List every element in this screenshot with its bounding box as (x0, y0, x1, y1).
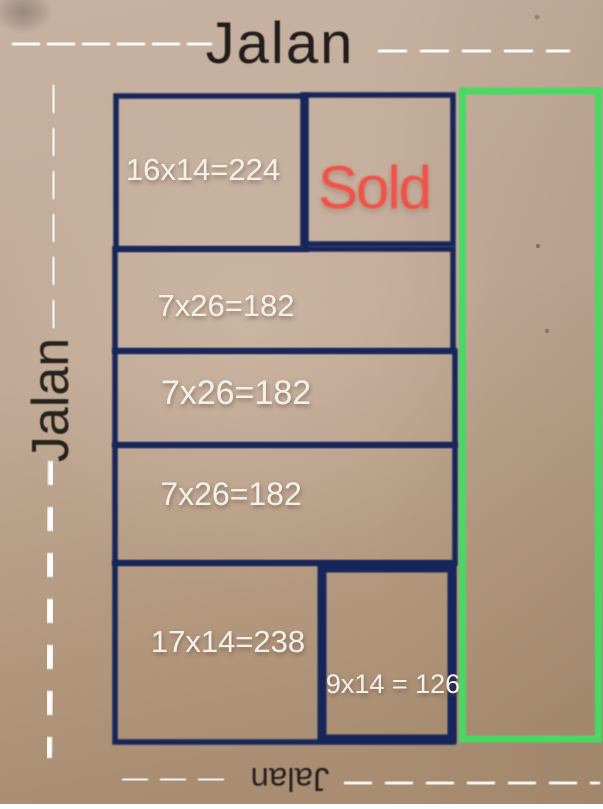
svg-text:7x26=182: 7x26=182 (157, 288, 294, 323)
svg-text:Jalan: Jalan (251, 761, 330, 798)
svg-text:Sold: Sold (318, 154, 430, 221)
svg-text:Jalan: Jalan (206, 11, 355, 76)
svg-text:17x14=238: 17x14=238 (151, 624, 305, 659)
svg-text:9x14 = 126: 9x14 = 126 (326, 669, 460, 699)
svg-text:7x26=182: 7x26=182 (161, 374, 311, 412)
svg-text:Jalan: Jalan (22, 338, 80, 462)
svg-text:7x26=182: 7x26=182 (160, 476, 301, 512)
svg-text:16x14=224: 16x14=224 (126, 152, 280, 187)
